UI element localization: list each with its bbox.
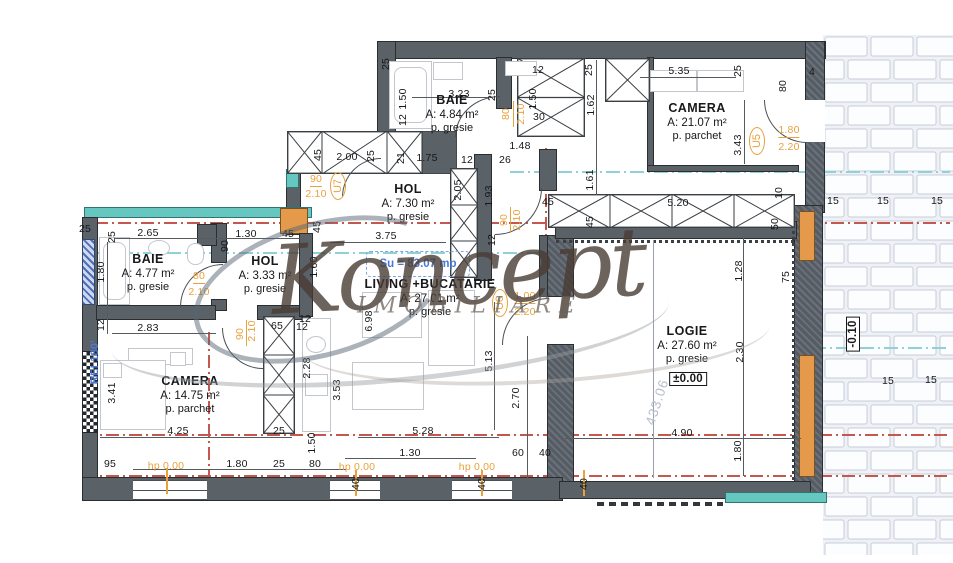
dim-label: 15 [925, 374, 937, 386]
dim-line [100, 437, 292, 438]
wall-top [378, 42, 825, 58]
wood-post [800, 212, 814, 260]
insulation-teal-bottom [726, 493, 826, 502]
dim-label: 1.60 [308, 256, 320, 277]
wall-left-hatched [83, 240, 94, 304]
dim-label: 25 [273, 425, 285, 437]
dim-label: 3.75 [375, 230, 396, 242]
dim-label: 25 [79, 223, 91, 235]
insulation-strip [792, 212, 795, 500]
dim-label: 75 [780, 271, 792, 283]
dim-label: 10 [773, 187, 785, 199]
usable-area-value: Su = 83.07 mp [379, 258, 456, 270]
dim-label: 25 [365, 150, 377, 162]
room-floor-type: p. gresie [121, 281, 174, 294]
fixture-block [198, 225, 216, 245]
dim-label: 40 [539, 447, 551, 459]
wall-camera-inner [648, 166, 798, 171]
dim-label: 26 [499, 154, 511, 166]
window [133, 480, 207, 500]
dim-label: 21 [395, 152, 407, 164]
dim-label: 90 [219, 240, 231, 252]
wood-post [800, 356, 814, 476]
dim-label: 1.80 [95, 261, 107, 282]
room-name: CAMERA [160, 374, 219, 389]
dim-label: 95 [104, 458, 116, 470]
dim-label: 2.05 [452, 179, 464, 200]
room-label-camera-bottom: CAMERAA: 14.75 m²p. parchet [160, 374, 219, 417]
door-size-label: 2.10 [511, 209, 523, 230]
dim-label: 2.28 [301, 357, 313, 378]
coffee-table [352, 362, 424, 410]
room-name: LIVING +BUCATARIE [365, 277, 496, 292]
room-floor-type: p. gresie [365, 306, 496, 319]
room-name: LOGIE [657, 324, 716, 339]
room-name: HOL [238, 254, 291, 269]
door-size-label: 1.00 [514, 290, 535, 304]
room-area: A: 7.30 m² [381, 197, 434, 211]
dim-label: 40 [350, 478, 362, 490]
dim-label: 4 [809, 66, 815, 78]
dim-label: 25 [380, 58, 392, 70]
dim-label: 1.30 [235, 228, 256, 240]
dim-label: 45 [584, 216, 596, 228]
dim-label: 1.50 [306, 432, 318, 453]
dim-line [330, 242, 446, 243]
dim-label: 45 [542, 196, 554, 208]
annotation-label: REI 180' [89, 340, 101, 384]
dim-label: 12 [461, 154, 473, 166]
wall-camera-top [97, 306, 215, 319]
usable-area-box: Su = 83.07 mp [366, 251, 470, 277]
dim-label: 80 [309, 458, 321, 470]
dim-label: 25 [486, 89, 498, 101]
dim-line [744, 100, 745, 164]
dim-label: 25 [273, 458, 285, 470]
room-name: HOL [381, 182, 434, 197]
axis-line-cyan [510, 171, 950, 173]
door-tag-u5: U5 [749, 127, 765, 155]
dim-label: 1.75 [416, 152, 437, 164]
clipped-text-strip [597, 502, 723, 506]
dim-label: 1.50 [397, 88, 409, 109]
room-area: A: 27.01 m² [365, 292, 496, 306]
room-area: A: 27.60 m² [657, 339, 716, 353]
dim-label: 1.30 [399, 447, 420, 459]
room-area: A: 14.75 m² [160, 389, 219, 403]
dim-label: 1.48 [509, 140, 530, 152]
dim-label: 4.25 [167, 425, 188, 437]
dim-label: 40 [578, 478, 590, 490]
dim-label: 1.80 [226, 458, 247, 470]
dim-label: 25 [583, 64, 595, 76]
door-size-label: 1.80 [778, 124, 799, 138]
dim-label: 1.80 [732, 440, 744, 461]
dim-label: 15 [827, 195, 839, 207]
brick-wall [823, 35, 953, 555]
dim-label: 15 [882, 375, 894, 387]
room-area: A: 21.07 m² [667, 116, 726, 130]
door-size-label: 2.10 [246, 320, 258, 341]
dim-label: 5.28 [412, 425, 433, 437]
dim-label: 40 [476, 478, 488, 490]
dim-label: 80 [777, 80, 789, 92]
wall-living-logie [548, 236, 573, 296]
room-label-baie-top: BAIEA: 4.84 m²p. gresie [425, 93, 478, 136]
dim-label: 2.83 [137, 322, 158, 334]
dim-label: 1.62 [585, 94, 597, 115]
dim-label: 3.53 [331, 379, 343, 400]
parapet-height-label: hp 0.00 [339, 461, 375, 473]
dim-label: 12 [95, 319, 107, 331]
room-label-living: LIVING +BUCATARIEA: 27.01 m²p. gresie [365, 277, 496, 320]
room-label-baie-left: BAIEA: 4.77 m²p. gresie [121, 252, 174, 295]
dim-label: 60 [512, 447, 524, 459]
door-size-label: 2.10 [188, 286, 209, 298]
dim-label: 25 [732, 65, 744, 77]
dim-label: 2.00 [336, 151, 357, 163]
kitchen-sink [306, 336, 326, 353]
room-area: A: 3.33 m² [238, 269, 291, 283]
dim-line [107, 242, 108, 334]
level-label: -0.10 [846, 316, 860, 351]
dim-label: 12 [299, 313, 311, 325]
door-size-label: 2.20 [514, 306, 535, 318]
floor-plan-canvas: Su = 83.07 mp Koncept IMOBILIARE 253.232… [0, 0, 953, 563]
dim-label: 1.61 [584, 169, 596, 190]
parapet-height-label: hp 0.00 [459, 461, 495, 473]
room-area: A: 4.84 m² [425, 108, 478, 122]
door-size-label: 90 [498, 214, 510, 226]
dim-line [596, 60, 597, 195]
toilet [187, 243, 204, 265]
room-label-hol-left: HOLA: 3.33 m²p. gresie [238, 254, 291, 297]
insulation-teal-top [85, 208, 311, 217]
axis-line-cyan [812, 347, 950, 349]
dim-label: 2.65 [137, 227, 158, 239]
room-name: BAIE [121, 252, 174, 267]
room-floor-type: p. gresie [238, 283, 291, 296]
dim-label: 30 [533, 111, 545, 123]
dim-label: 12 [397, 114, 409, 126]
room-floor-type: p. parchet [160, 403, 219, 416]
dim-label: 5.35 [668, 65, 689, 77]
level-label: ±0.00 [669, 372, 707, 386]
dim-label: 2.70 [510, 387, 522, 408]
dim-label: 65 [271, 320, 283, 332]
dim-label: 3.43 [732, 134, 744, 155]
dim-label: 12 [486, 234, 498, 246]
room-floor-type: p. gresie [425, 122, 478, 135]
door-size-label: 2.10 [515, 103, 527, 124]
dim-label: 45 [312, 149, 324, 161]
dim-label: 1.50 [527, 88, 539, 109]
wall-lobby-right [540, 150, 556, 190]
room-name: CAMERA [667, 101, 726, 116]
annotation-label: 433.06 [643, 377, 672, 427]
door-size-label: 90 [234, 328, 246, 340]
door-size-label: 80 [500, 108, 512, 120]
shaft-grid [605, 58, 650, 102]
dim-label: 25 [106, 231, 118, 243]
dim-label: 5.20 [667, 197, 688, 209]
logie-guide-line [653, 240, 654, 478]
door-size-label: 80 [193, 270, 205, 284]
door-size-bar [513, 101, 514, 127]
dim-line [527, 336, 528, 478]
dim-label: 50 [769, 218, 781, 230]
room-label-camera-top: CAMERAA: 21.07 m²p. parchet [667, 101, 726, 144]
wall-living-logie [548, 345, 573, 483]
room-floor-type: p. gresie [657, 353, 716, 366]
dim-label: 45 [282, 228, 294, 240]
room-name: BAIE [425, 93, 478, 108]
dim-label: 3.41 [106, 382, 118, 403]
room-floor-type: p. gresie [381, 211, 434, 224]
door-size-label: 2.20 [778, 141, 799, 153]
dim-label: 4.90 [671, 427, 692, 439]
door-opening [805, 100, 825, 142]
room-floor-type: p. parchet [667, 130, 726, 143]
shaft-column [263, 316, 295, 434]
room-area: A: 4.77 m² [121, 267, 174, 281]
dim-label: 15 [877, 195, 889, 207]
room-label-hol-top: HOLA: 7.30 m²p. gresie [381, 182, 434, 225]
door-size-label: 2.10 [305, 188, 326, 200]
insulation-strip [556, 240, 794, 243]
sink [433, 62, 463, 80]
room-label-logie: LOGIEA: 27.60 m²p. gresie [657, 324, 716, 367]
dim-label: 12 [532, 64, 544, 76]
door-tag-u7: U7 [330, 172, 346, 200]
door-size-label: 90 [310, 173, 322, 187]
dim-line [112, 333, 216, 334]
dim-label: 1.93 [483, 185, 495, 206]
dim-line [640, 77, 736, 78]
parapet-height-label: hp 0.00 [148, 460, 184, 472]
dim-label: 5.13 [483, 350, 495, 371]
dim-line [358, 437, 499, 438]
dim-label: 45 [311, 221, 323, 233]
dim-label: 2.30 [734, 341, 746, 362]
pillow [103, 363, 122, 378]
dim-label: 15 [931, 195, 943, 207]
nightstand [170, 352, 186, 366]
dim-label: 1.28 [733, 260, 745, 281]
